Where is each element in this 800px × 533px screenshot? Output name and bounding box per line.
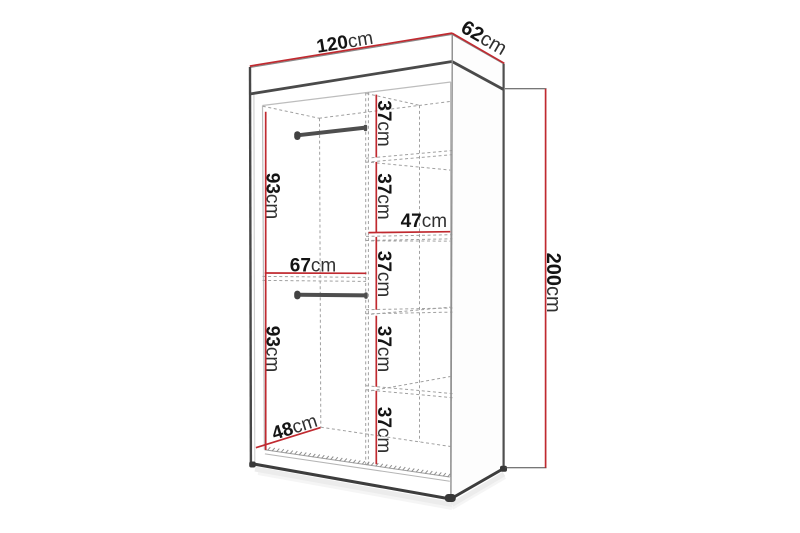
svg-text:37cm: 37cm xyxy=(373,251,394,297)
svg-text:200cm: 200cm xyxy=(542,253,564,313)
svg-text:37cm: 37cm xyxy=(373,173,394,219)
svg-text:37cm: 37cm xyxy=(373,100,394,146)
svg-text:47cm: 47cm xyxy=(401,211,447,232)
svg-text:93cm: 93cm xyxy=(262,173,283,219)
svg-text:93cm: 93cm xyxy=(262,326,283,372)
svg-text:67cm: 67cm xyxy=(290,255,336,276)
svg-text:37cm: 37cm xyxy=(373,407,394,453)
svg-text:37cm: 37cm xyxy=(373,326,394,372)
